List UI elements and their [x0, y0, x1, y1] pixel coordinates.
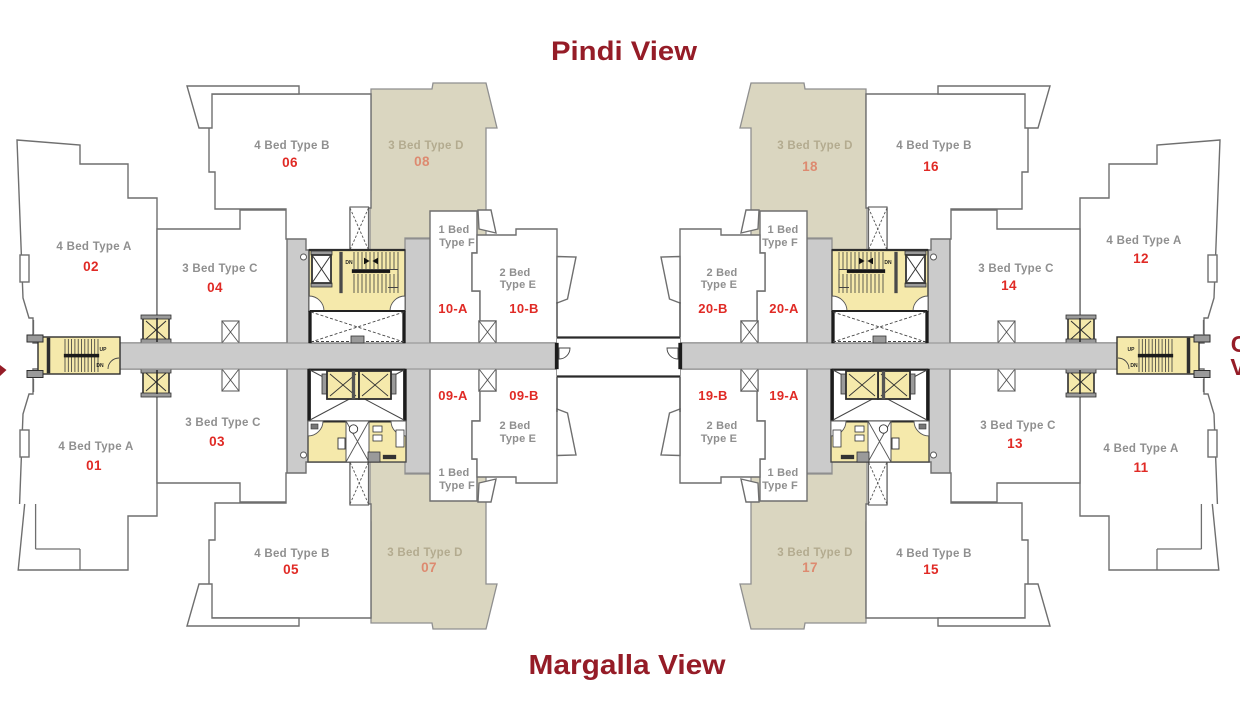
svg-text:1 Bed: 1 Bed: [768, 467, 799, 479]
svg-text:01: 01: [86, 458, 102, 473]
svg-text:Type F: Type F: [439, 480, 475, 492]
svg-text:3 Bed Type C: 3 Bed Type C: [185, 417, 261, 429]
svg-text:3 Bed Type D: 3 Bed Type D: [777, 140, 853, 152]
svg-text:18: 18: [802, 159, 818, 174]
svg-text:1 Bed: 1 Bed: [439, 467, 470, 479]
svg-text:4 Bed Type A: 4 Bed Type A: [1103, 443, 1178, 455]
svg-text:19-A: 19-A: [769, 388, 799, 403]
svg-text:Type E: Type E: [701, 279, 737, 291]
svg-text:16: 16: [923, 159, 939, 174]
svg-text:2 Bed: 2 Bed: [707, 420, 738, 432]
svg-text:1 Bed: 1 Bed: [768, 224, 799, 236]
svg-text:04: 04: [207, 280, 223, 295]
svg-text:15: 15: [923, 562, 939, 577]
svg-text:09-A: 09-A: [438, 388, 468, 403]
svg-text:05: 05: [283, 562, 299, 577]
svg-text:10-A: 10-A: [438, 301, 468, 316]
svg-text:Type F: Type F: [439, 237, 475, 249]
svg-text:19-B: 19-B: [698, 388, 727, 403]
svg-text:20-A: 20-A: [769, 301, 799, 316]
svg-text:08: 08: [414, 154, 430, 169]
svg-text:3 Bed Type D: 3 Bed Type D: [388, 140, 464, 152]
svg-text:V: V: [1230, 354, 1240, 380]
svg-text:4 Bed Type B: 4 Bed Type B: [896, 140, 972, 152]
svg-text:13: 13: [1007, 436, 1023, 451]
svg-text:DN: DN: [1130, 363, 1138, 369]
svg-text:UP: UP: [1128, 347, 1136, 353]
svg-text:2 Bed: 2 Bed: [500, 267, 531, 279]
svg-text:Margalla View: Margalla View: [529, 649, 727, 680]
svg-text:Pindi View: Pindi View: [551, 36, 698, 66]
svg-text:3 Bed Type C: 3 Bed Type C: [182, 263, 258, 275]
svg-text:1 Bed: 1 Bed: [439, 224, 470, 236]
svg-text:3 Bed Type C: 3 Bed Type C: [978, 263, 1054, 275]
svg-text:06: 06: [282, 155, 298, 170]
svg-text:4 Bed Type B: 4 Bed Type B: [254, 140, 330, 152]
svg-text:20-B: 20-B: [698, 301, 727, 316]
svg-text:11: 11: [1133, 460, 1148, 475]
svg-text:UP: UP: [100, 347, 108, 353]
svg-text:12: 12: [1133, 251, 1149, 266]
svg-text:Type E: Type E: [500, 433, 536, 445]
svg-text:03: 03: [209, 434, 225, 449]
svg-text:09-B: 09-B: [509, 388, 538, 403]
svg-text:4 Bed Type A: 4 Bed Type A: [56, 241, 131, 253]
svg-text:4 Bed Type B: 4 Bed Type B: [254, 548, 330, 560]
svg-text:Type E: Type E: [500, 279, 536, 291]
svg-text:3 Bed Type D: 3 Bed Type D: [387, 547, 463, 559]
svg-text:DN: DN: [345, 260, 353, 266]
svg-text:4 Bed Type A: 4 Bed Type A: [1106, 235, 1181, 247]
svg-text:2 Bed: 2 Bed: [707, 267, 738, 279]
svg-text:07: 07: [421, 560, 437, 575]
svg-text:02: 02: [83, 259, 99, 274]
svg-text:4 Bed Type B: 4 Bed Type B: [896, 548, 972, 560]
svg-text:3 Bed Type D: 3 Bed Type D: [777, 547, 853, 559]
svg-text:10-B: 10-B: [509, 301, 538, 316]
svg-text:Type E: Type E: [701, 433, 737, 445]
svg-text:17: 17: [802, 560, 818, 575]
svg-text:Type F: Type F: [762, 237, 798, 249]
svg-text:Type F: Type F: [762, 480, 798, 492]
svg-text:3 Bed Type C: 3 Bed Type C: [980, 420, 1056, 432]
svg-text:14: 14: [1001, 278, 1017, 293]
svg-text:4 Bed Type A: 4 Bed Type A: [58, 441, 133, 453]
svg-text:DN: DN: [96, 363, 104, 369]
svg-text:DN: DN: [884, 260, 892, 266]
svg-text:2 Bed: 2 Bed: [500, 420, 531, 432]
